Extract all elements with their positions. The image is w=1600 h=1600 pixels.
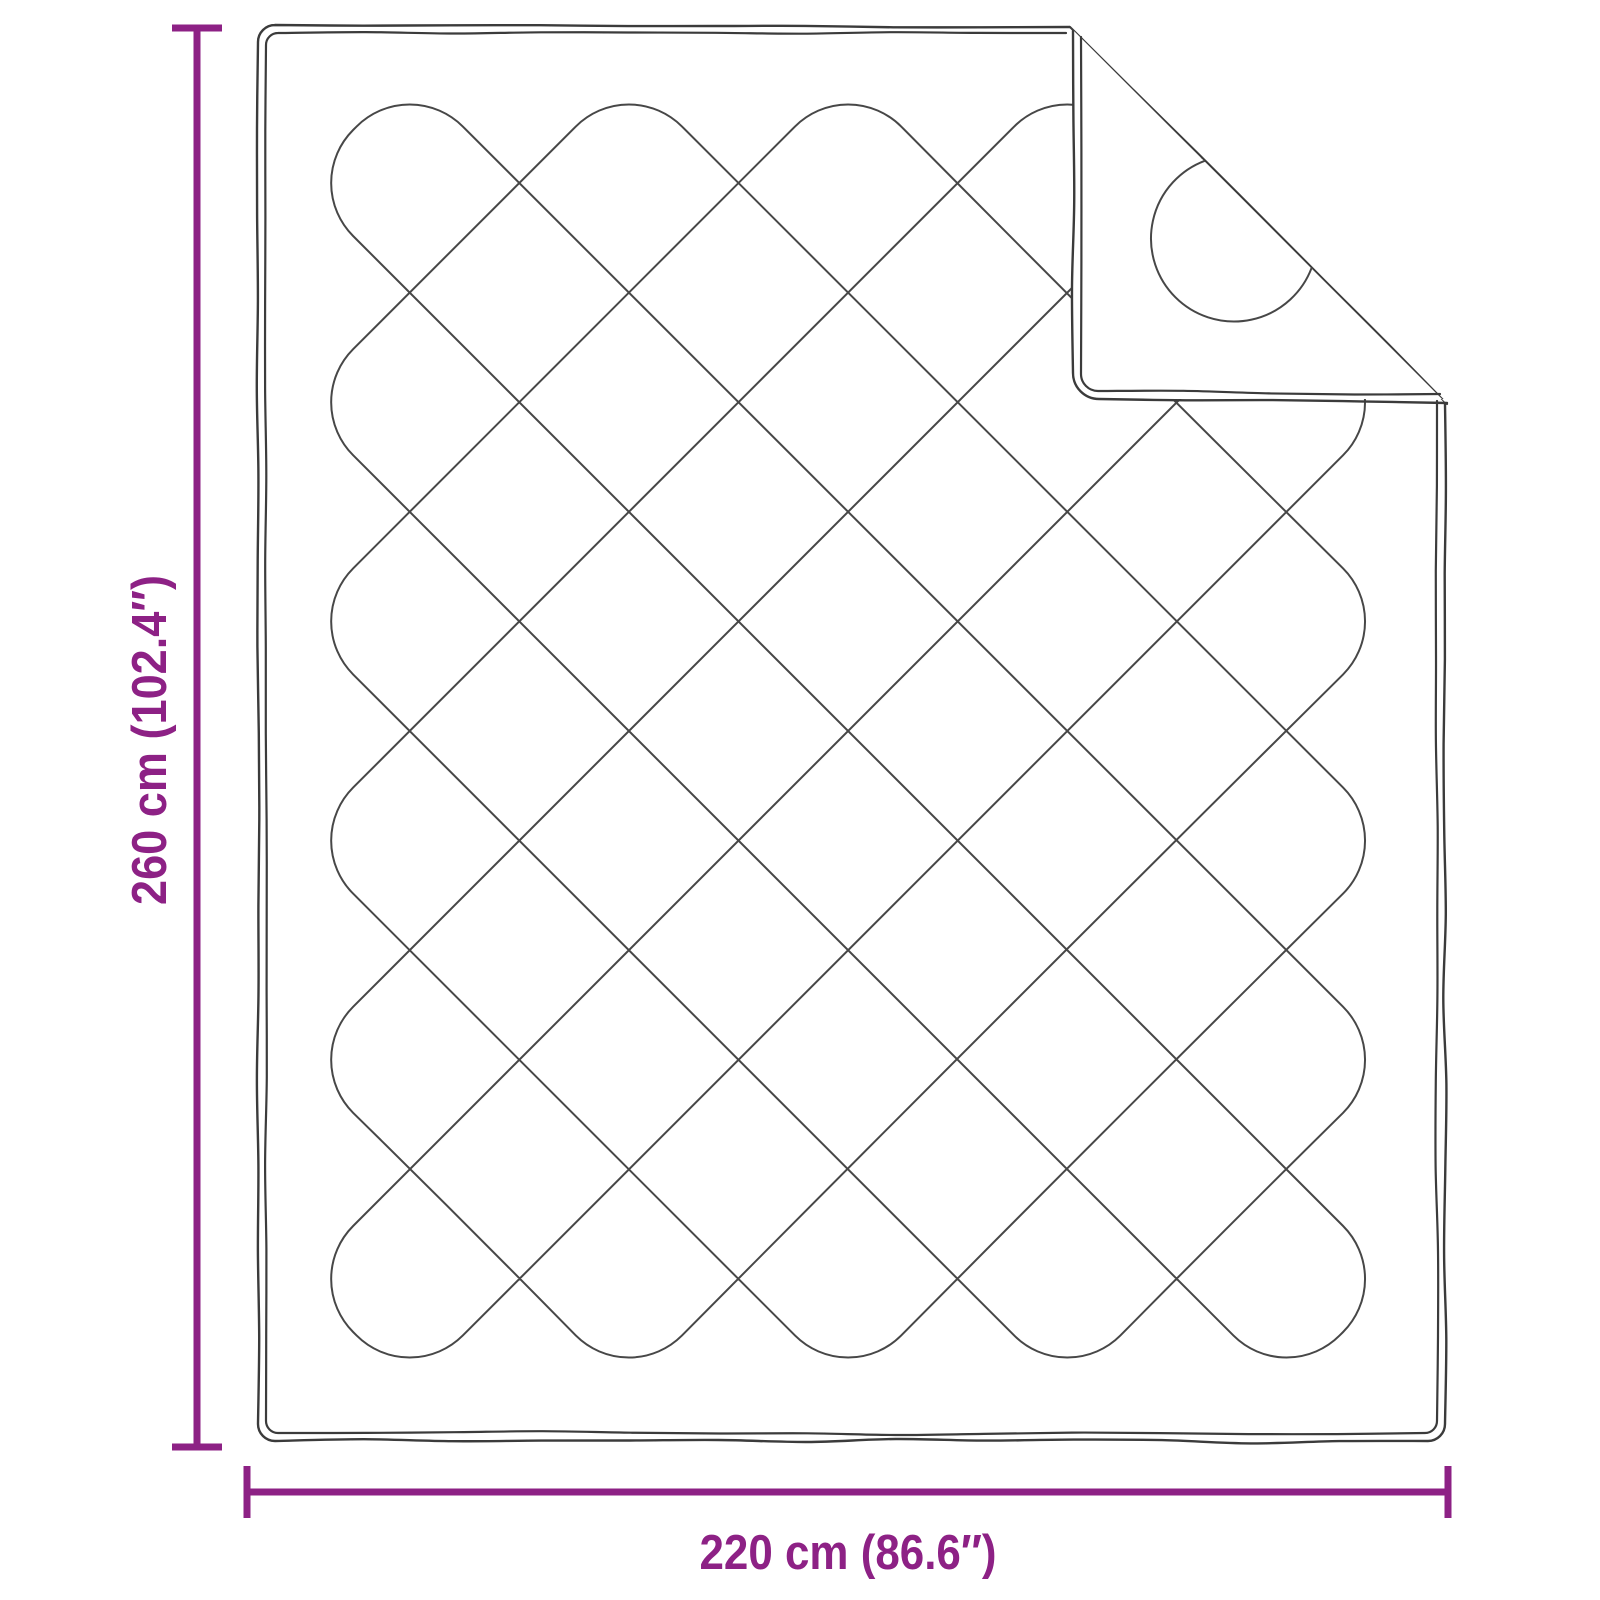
svg-text:220 cm (86.6″): 220 cm (86.6″) bbox=[700, 1526, 997, 1580]
svg-text:260 cm (102.4″): 260 cm (102.4″) bbox=[123, 575, 177, 905]
